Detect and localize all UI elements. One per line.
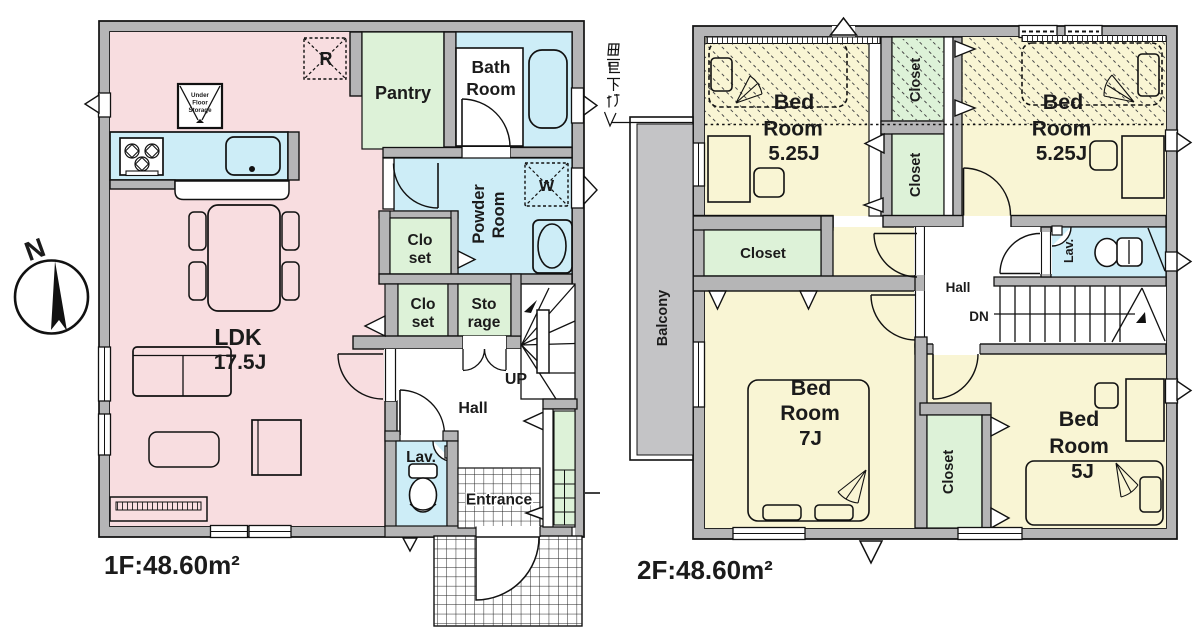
svg-text:Hall: Hall <box>458 400 487 417</box>
svg-text:7J: 7J <box>799 427 822 450</box>
svg-text:5J: 5J <box>1071 460 1094 483</box>
svg-text:5.25J: 5.25J <box>768 142 819 165</box>
svg-text:Bed: Bed <box>1059 407 1100 431</box>
svg-text:LDK: LDK <box>214 324 262 350</box>
svg-text:17.5J: 17.5J <box>214 351 267 374</box>
svg-text:Clo: Clo <box>408 232 433 249</box>
svg-text:W: W <box>539 178 555 195</box>
svg-text:Balcony: Balcony <box>655 290 671 346</box>
svg-text:Closet: Closet <box>740 245 786 262</box>
svg-text:5.25J: 5.25J <box>1036 142 1087 165</box>
svg-text:DN: DN <box>969 309 989 324</box>
svg-text:Bath: Bath <box>472 57 511 77</box>
svg-text:rage: rage <box>468 314 501 331</box>
svg-text:Floor: Floor <box>192 100 208 107</box>
svg-text:Room: Room <box>763 118 823 141</box>
svg-text:Room: Room <box>466 79 516 99</box>
svg-text:Sto: Sto <box>472 296 497 313</box>
svg-text:Clo: Clo <box>411 296 436 313</box>
svg-text:2F:48.60m²: 2F:48.60m² <box>637 555 773 585</box>
svg-text:R: R <box>320 49 333 69</box>
svg-text:Bed: Bed <box>1043 90 1084 114</box>
svg-text:Room: Room <box>1049 435 1109 458</box>
svg-text:1F:48.60m²: 1F:48.60m² <box>104 550 240 580</box>
svg-text:Storage: Storage <box>188 107 212 114</box>
svg-text:set: set <box>409 250 431 267</box>
svg-text:Room: Room <box>490 192 508 239</box>
svg-text:Room: Room <box>1032 118 1092 141</box>
svg-text:Closet: Closet <box>941 450 957 494</box>
svg-text:Under: Under <box>191 92 209 99</box>
svg-text:Hall: Hall <box>946 280 971 295</box>
svg-text:Pantry: Pantry <box>375 83 431 103</box>
svg-text:Room: Room <box>780 402 840 425</box>
svg-text:set: set <box>412 314 434 331</box>
svg-text:Bed: Bed <box>774 90 815 114</box>
svg-text:Powder: Powder <box>470 184 488 244</box>
svg-text:Bed: Bed <box>791 376 832 400</box>
svg-text:Entrance: Entrance <box>466 492 533 509</box>
svg-text:UP: UP <box>505 371 528 388</box>
svg-text:Closet: Closet <box>908 153 924 197</box>
